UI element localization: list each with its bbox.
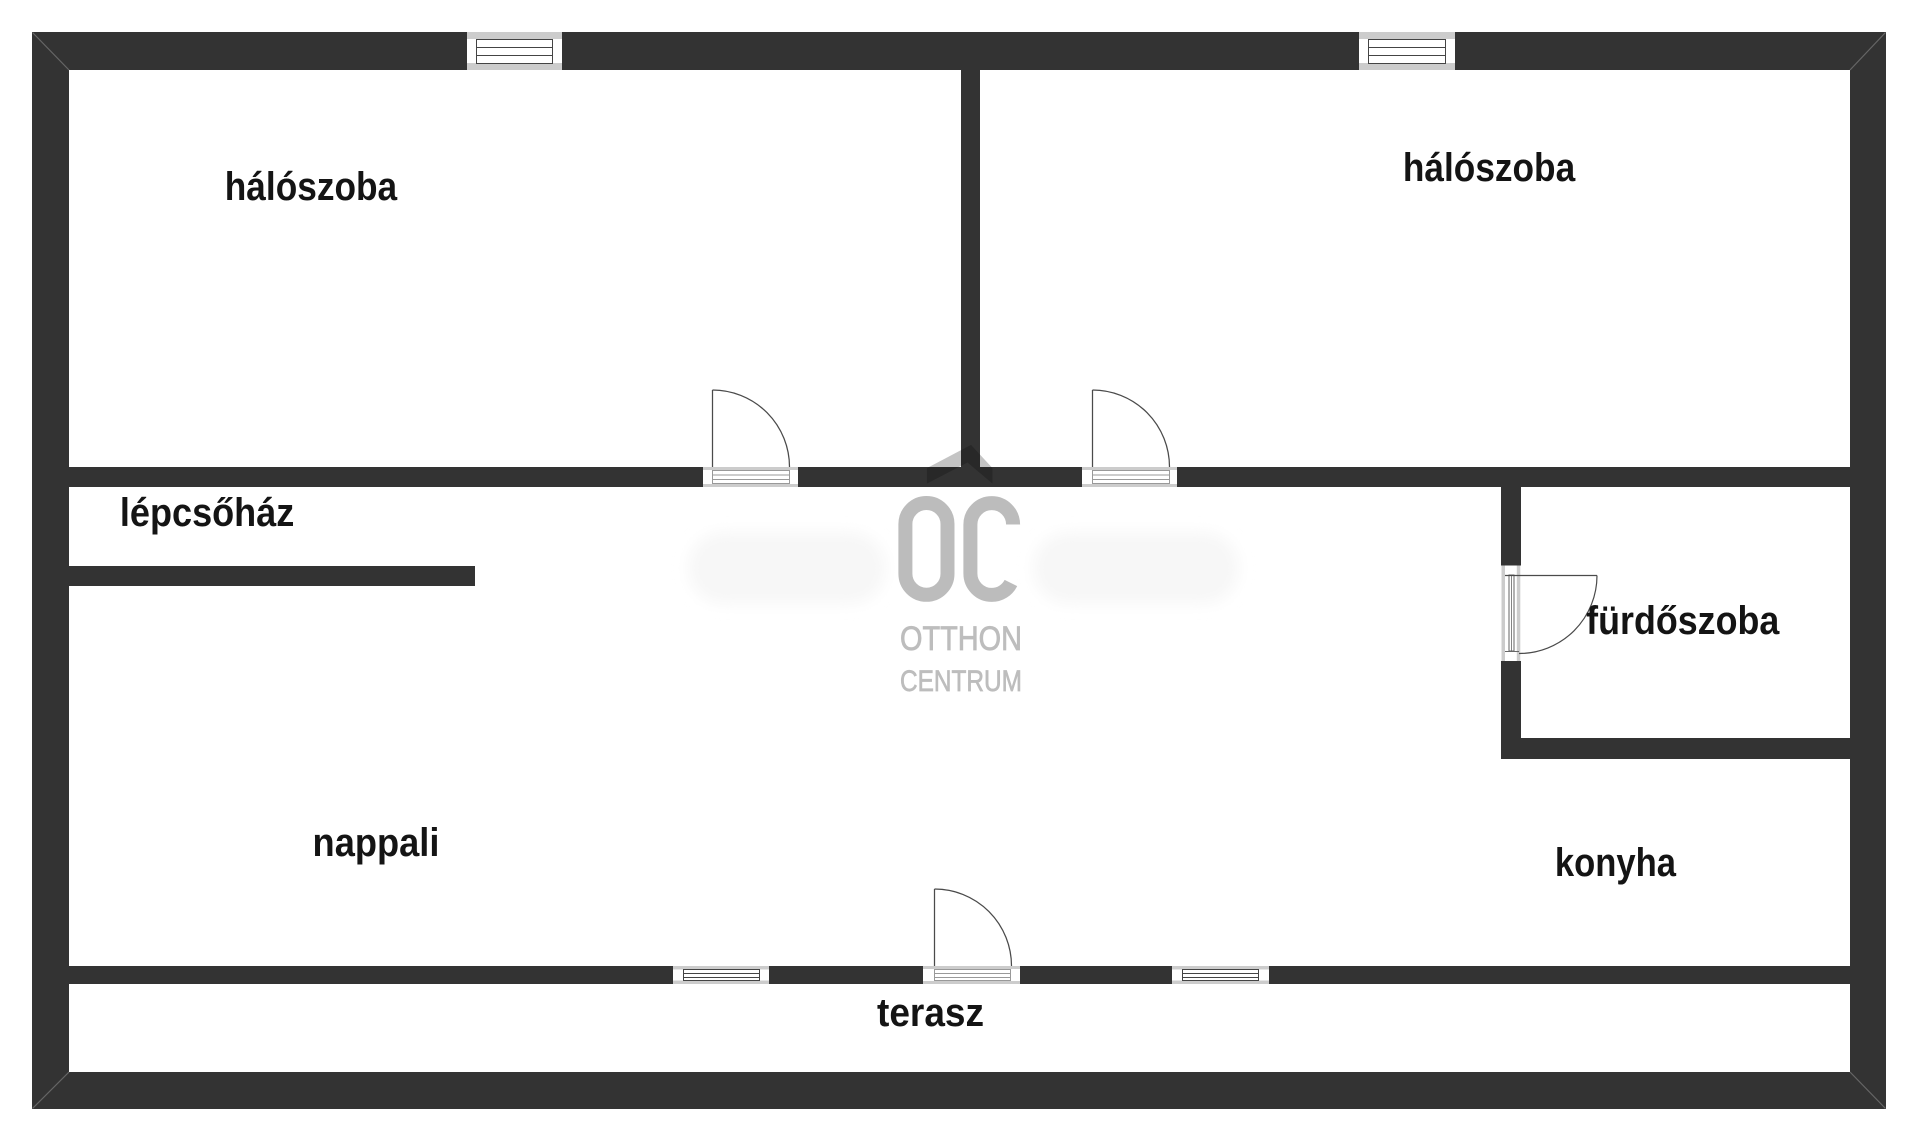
svg-text:CENTRUM: CENTRUM xyxy=(900,665,1022,698)
svg-text:lépcsőház: lépcsőház xyxy=(120,491,294,535)
svg-text:konyha: konyha xyxy=(1555,840,1677,885)
svg-text:terasz: terasz xyxy=(877,991,984,1036)
svg-text:fürdőszoba: fürdőszoba xyxy=(1586,599,1780,643)
svg-text:OTTHON: OTTHON xyxy=(900,620,1022,658)
svg-text:nappali: nappali xyxy=(313,820,440,865)
svg-text:hálószoba: hálószoba xyxy=(1403,145,1576,190)
svg-text:hálószoba: hálószoba xyxy=(225,164,398,209)
